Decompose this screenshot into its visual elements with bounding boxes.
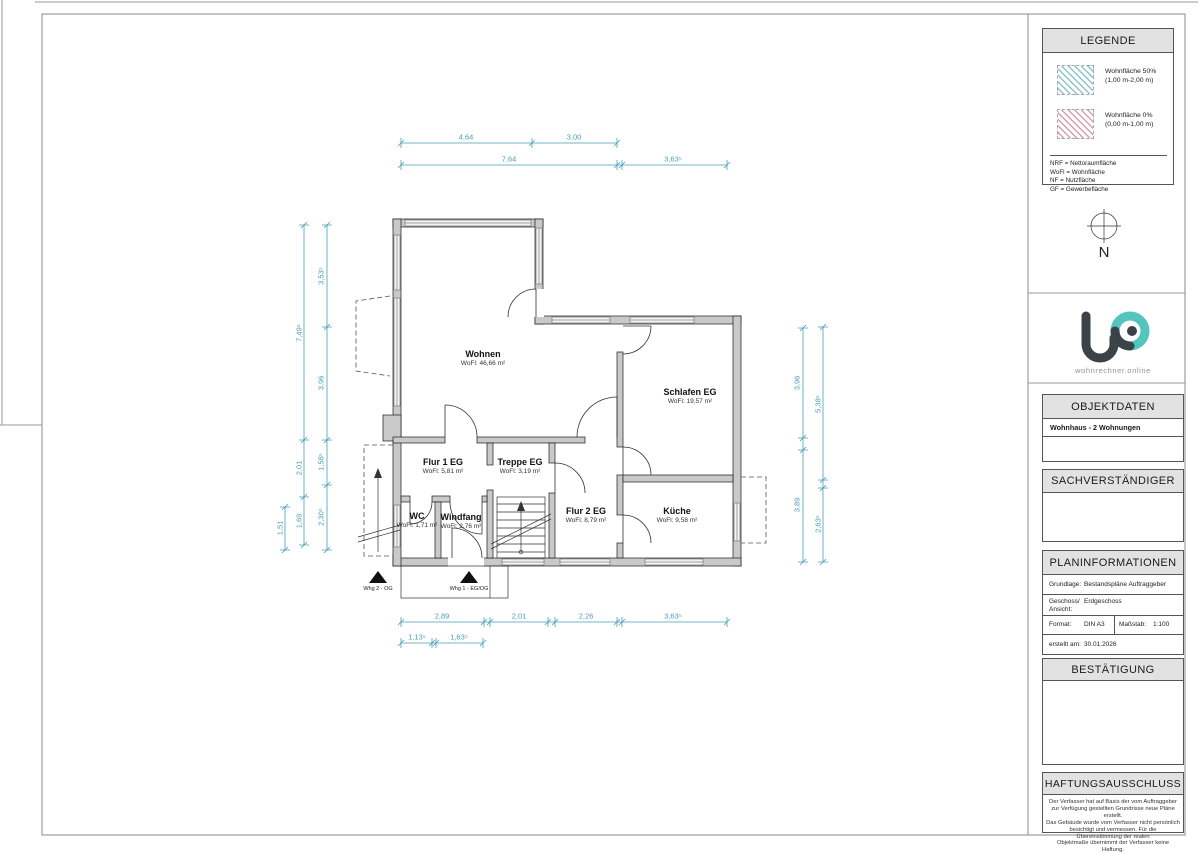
legend-item-50-label: Wohnfläche 50% (1105, 67, 1156, 76)
staircase (491, 497, 551, 558)
sachverstaendiger-box: SACHVERSTÄNDIGER (1042, 469, 1184, 542)
legend-item-50: Wohnfläche 50% (1,00 m-2,00 m) (1105, 67, 1156, 85)
dimension-label: 2,26 (577, 612, 596, 621)
geschoss-label-2: Ansicht: (1049, 606, 1072, 613)
plan-sheet: { "colors": { "dimension_teal": "#4a9db6… (0, 0, 1200, 849)
dimension-label: 3,96 (793, 374, 802, 393)
dimension-label: 3,00 (565, 133, 584, 142)
abbr-nrf: NRF = Nettoraumfläche (1050, 160, 1167, 169)
room-label: Flur 2 EGWoFl: 8,79 m² (566, 506, 607, 524)
dimension-label: 1,63⁵ (448, 633, 470, 642)
hatch-50-swatch (1057, 65, 1094, 95)
sachverstaendiger-title: SACHVERSTÄNDIGER (1043, 470, 1183, 493)
room-label: Schlafen EGWoFl: 19,57 m² (663, 387, 716, 405)
dimension-label: 3,89 (793, 496, 802, 515)
dimension-label: 4,64 (457, 133, 476, 142)
legend-box: LEGENDE Wohnfläche 50% (1,00 m-2,00 m) W… (1042, 28, 1174, 185)
objektdaten-title: OBJEKTDATEN (1043, 395, 1183, 419)
dimension-label: 2,01 (510, 612, 529, 621)
format-value: DIN A3 (1084, 621, 1105, 628)
dimension-label: 3,96 (317, 374, 326, 393)
haftungsausschluss-title: HAFTUNGSAUSSCHLUSS (1043, 773, 1183, 795)
massstab-label: Maßstab: (1119, 621, 1146, 628)
dimension-label: 7,64 (500, 155, 519, 164)
legend-item-0: Wohnfläche 0% (0,00 m-1,00 m) (1105, 111, 1153, 129)
geschoss-label-1: Geschoss/ (1049, 598, 1080, 605)
legend-item-0-range: (0,00 m-1,00 m) (1105, 120, 1153, 129)
dimension-label: 3,63⁵ (662, 155, 684, 164)
room-label: WCWoFl: 1,71 m² (397, 511, 438, 529)
dimension-label: 2,01 (295, 459, 304, 478)
page-frame (0, 0, 1198, 835)
room-label: KücheWoFl: 9,58 m² (657, 506, 698, 524)
grundlage-label: Grundlage: (1049, 581, 1081, 588)
dimension-label: 7,49⁵ (295, 322, 304, 344)
entrance-arrows (369, 571, 478, 583)
dimension-label: 2,63⁵ (814, 513, 823, 535)
entrance-label: Whg 2 - OG (363, 586, 392, 592)
grundlage-value: Bestandspläne Auftraggeber (1084, 581, 1166, 588)
objektdaten-value: Wohnhaus - 2 Wohnungen (1043, 419, 1183, 437)
abbr-gf: GF = Gewerbefläche (1050, 186, 1167, 195)
dimension-label: 5,38⁵ (814, 393, 823, 415)
geschoss-value: Erdgeschoss (1084, 598, 1122, 605)
legend-abbreviations: NRF = Nettoraumfläche WoFl = Wohnfläche … (1050, 155, 1167, 194)
dimension-label: 2,30⁵ (317, 506, 326, 528)
legend-item-50-range: (1,00 m-2,00 m) (1105, 76, 1156, 85)
dimension-label: 1,58⁵ (317, 451, 326, 473)
dimension-label: 1,51 (276, 519, 285, 538)
haftungsausschluss-text: Der Verfasser hat auf Basis der vom Auft… (1046, 799, 1180, 854)
dimension-lines (280, 138, 828, 648)
dimension-label: 3,63⁵ (662, 612, 684, 621)
dimension-label: 2,89 (433, 612, 452, 621)
bestaetigung-title: BESTÄTIGUNG (1043, 659, 1183, 681)
compass-north-label: N (1093, 244, 1115, 261)
format-label: Format: (1049, 621, 1071, 628)
dimension-label: 1,69 (295, 512, 304, 531)
bestaetigung-box: BESTÄTIGUNG (1042, 658, 1184, 765)
room-label: Flur 1 EGWoFl: 5,81 m² (423, 457, 464, 475)
planinformationen-title: PLANINFORMATIONEN (1043, 551, 1183, 575)
dimension-label: 1,13⁵ (406, 633, 428, 642)
haftungsausschluss-box: HAFTUNGSAUSSCHLUSS Der Verfasser hat auf… (1042, 772, 1184, 833)
compass-icon (1087, 209, 1121, 243)
objektdaten-box: OBJEKTDATEN Wohnhaus - 2 Wohnungen (1042, 394, 1184, 462)
massstab-value: 1:100 (1153, 621, 1169, 628)
abbr-nf: NF = Nutzfläche (1050, 177, 1167, 186)
legend-title: LEGENDE (1043, 29, 1173, 53)
entrance-label: Whg 1 - EG/OG (450, 586, 489, 592)
floor-plan (356, 219, 766, 598)
logo-icon (1086, 316, 1145, 358)
entrance-porch (401, 566, 508, 598)
room-label: WindfangWoFl: 2,76 m² (441, 512, 482, 530)
legend-item-0-label: Wohnfläche 0% (1105, 111, 1153, 120)
planinformationen-box: PLANINFORMATIONEN Grundlage: Bestandsplä… (1042, 550, 1184, 655)
logo-wordmark: wohnrechner.online (1048, 366, 1178, 375)
dimension-label: 3,53⁵ (317, 265, 326, 287)
erstellt-value: 30.01.2026 (1084, 641, 1117, 648)
floor-plan-drawing (0, 0, 1200, 849)
erstellt-label: erstellt am: (1049, 641, 1081, 648)
hatch-0-swatch (1057, 109, 1094, 139)
abbr-wofl: WoFl = Wohnfläche (1050, 169, 1167, 178)
room-label: WohnenWoFl: 46,66 m² (461, 349, 505, 367)
room-label: Treppe EGWoFl: 3,19 m² (497, 457, 542, 475)
